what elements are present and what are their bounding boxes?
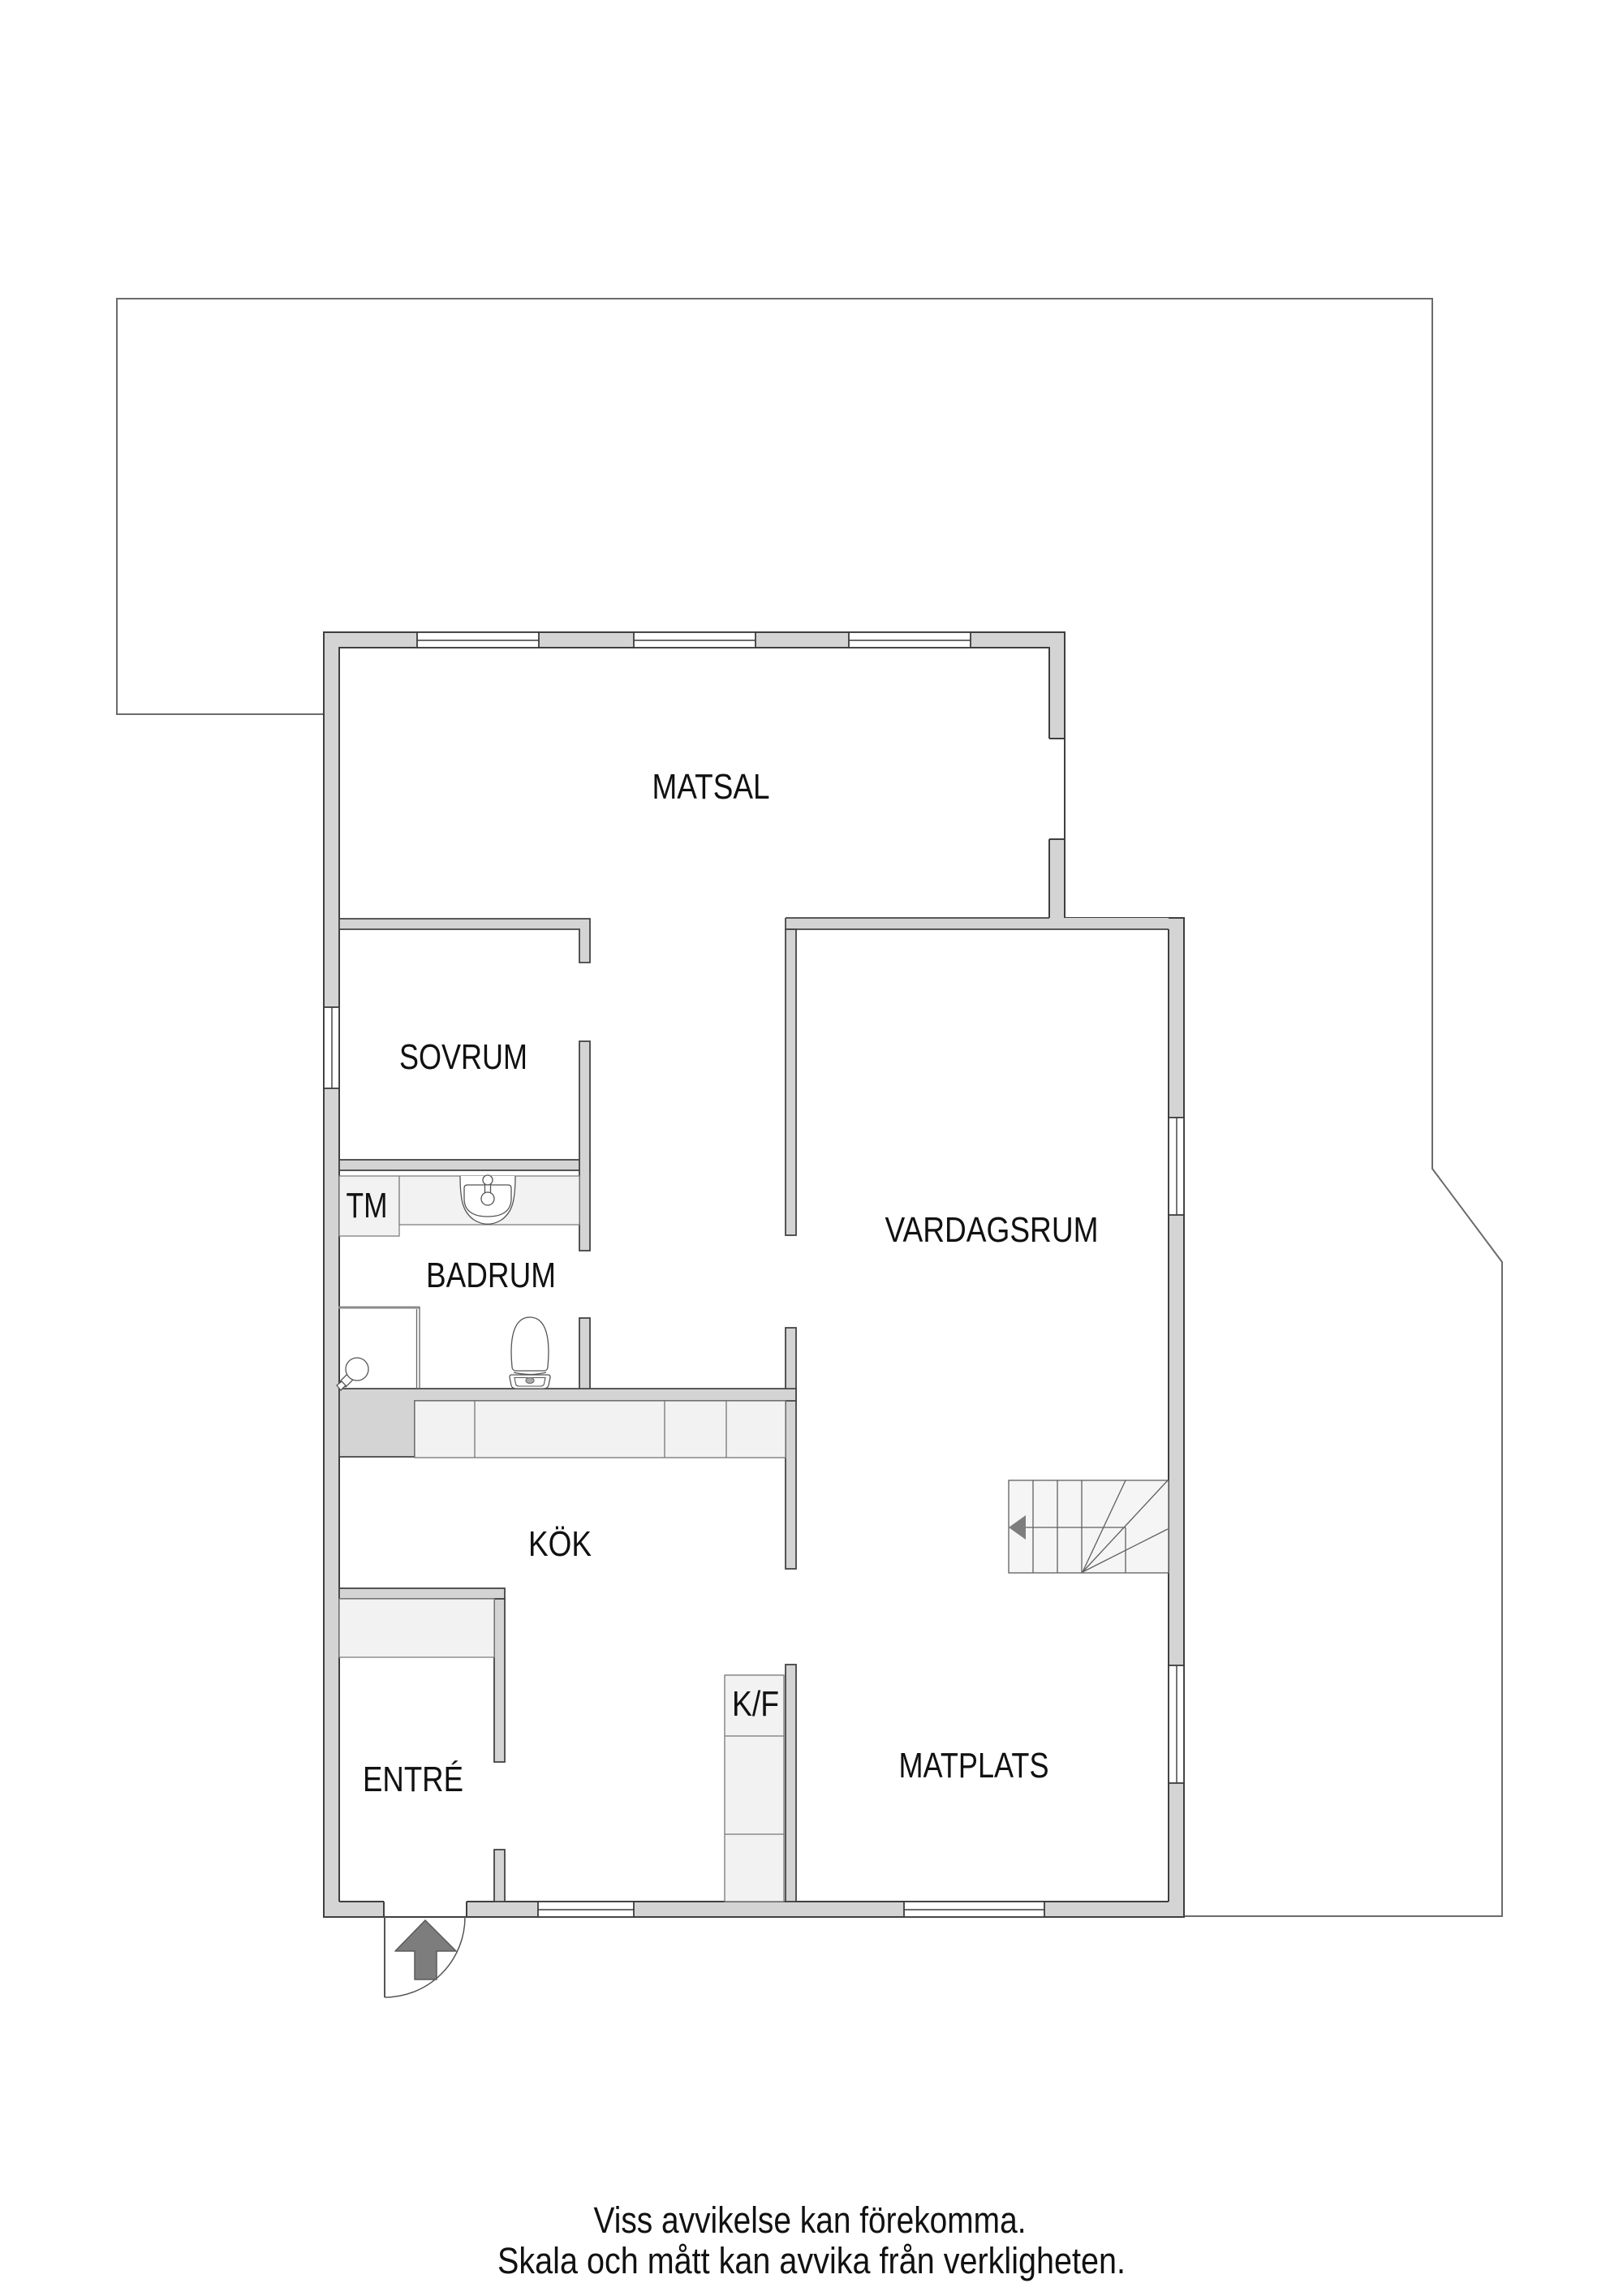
svg-text:VARDAGSRUM: VARDAGSRUM	[885, 1210, 1099, 1250]
svg-text:ENTRÉ: ENTRÉ	[363, 1760, 463, 1799]
svg-text:BADRUM: BADRUM	[426, 1256, 556, 1295]
svg-text:SOVRUM: SOVRUM	[399, 1037, 527, 1077]
svg-text:Skala och mått kan avvika från: Skala och mått kan avvika från verklighe…	[497, 2240, 1126, 2281]
svg-text:Viss avvikelse kan förekomma.: Viss avvikelse kan förekomma.	[594, 2199, 1027, 2241]
svg-text:TM: TM	[347, 1186, 388, 1226]
svg-text:MATSAL: MATSAL	[652, 767, 770, 807]
svg-text:MATPLATS: MATPLATS	[899, 1746, 1049, 1786]
svg-text:KÖK: KÖK	[528, 1524, 592, 1564]
svg-text:K/F: K/F	[732, 1684, 779, 1724]
